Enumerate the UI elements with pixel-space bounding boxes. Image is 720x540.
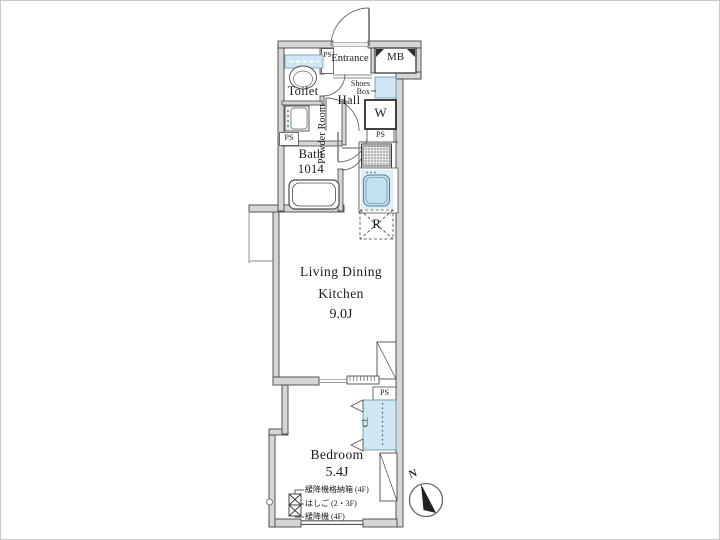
sliding-door [319,376,379,384]
bathtub-fixture [289,180,339,209]
floor-plan-page: PS Entrance MB Toilet Shoes Box Hall W P… [0,0,720,540]
shoes-box [371,77,396,98]
toilet-label: Toilet [280,84,326,98]
closet-label: Cl. [353,409,379,435]
bath-size-label: 1014 [284,162,338,176]
annotation-ladder: はしご (2・3F) [305,500,357,509]
bath-label: Bath [284,147,338,161]
meter-box-label: MB [375,51,416,63]
annotation-descender: 緩降機 (4F) [305,513,345,522]
annotation-descender-box: 緩降機格納箱 (4F) [305,486,369,495]
emergency-equipment [289,490,304,517]
washer-label: W [365,106,396,121]
bedroom-label: Bedroom [282,447,392,462]
ldk-label-line2: Kitchen [282,286,400,301]
kitchen-sink [359,168,398,213]
ps-bedroom-label: PS [373,389,396,398]
ps-powder-label: PS [280,134,298,143]
exterior-valve-mark [267,499,273,505]
ldk-size-label: 9.0J [282,307,400,323]
refrigerator-label: R [360,217,393,231]
kitchen-stove [362,144,392,168]
ldk-label-line1: Living Dining [282,264,400,279]
bedroom-size-label: 5.4J [282,465,392,481]
entrance-label: Entrance [331,53,369,65]
ps-kitchen-label: PS [367,131,394,140]
compass [410,484,443,517]
